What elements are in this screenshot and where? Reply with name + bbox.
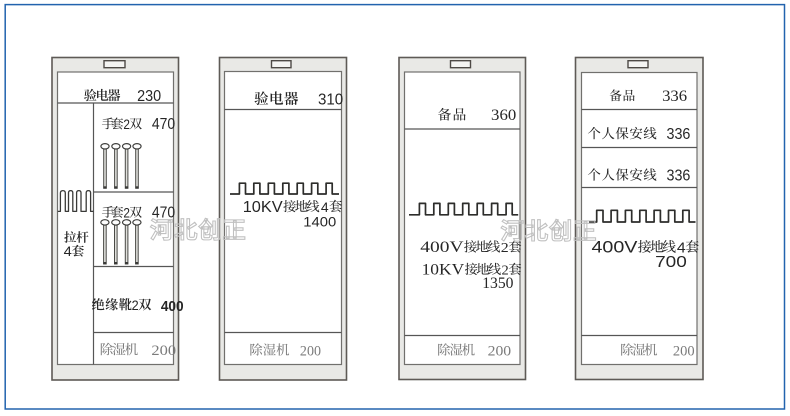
svg-text:4: 4 (321, 200, 329, 216)
svg-text:2: 2 (123, 205, 130, 221)
svg-text:200: 200 (300, 343, 321, 359)
svg-text:336: 336 (667, 126, 691, 143)
svg-text:470: 470 (152, 205, 175, 222)
svg-text:2: 2 (123, 116, 130, 132)
svg-text:336: 336 (667, 167, 691, 184)
svg-text:400: 400 (161, 299, 184, 315)
svg-text:400V: 400V (420, 239, 464, 256)
svg-text:230: 230 (137, 88, 161, 105)
svg-text:200: 200 (673, 343, 695, 359)
svg-text:360: 360 (491, 106, 516, 124)
svg-text:470: 470 (152, 116, 175, 133)
svg-text:2: 2 (501, 241, 509, 256)
svg-text:10KV: 10KV (243, 199, 284, 216)
svg-text:1350: 1350 (482, 275, 514, 292)
svg-text:1400: 1400 (303, 215, 336, 230)
svg-text:4: 4 (64, 244, 73, 259)
svg-text:336: 336 (662, 88, 687, 105)
svg-text:400V: 400V (591, 238, 637, 256)
svg-text:2: 2 (132, 297, 139, 313)
svg-text:310: 310 (318, 92, 343, 109)
svg-text:700: 700 (655, 254, 687, 271)
svg-text:200: 200 (151, 342, 176, 359)
svg-text:10KV: 10KV (422, 262, 465, 279)
svg-text:200: 200 (488, 343, 512, 359)
